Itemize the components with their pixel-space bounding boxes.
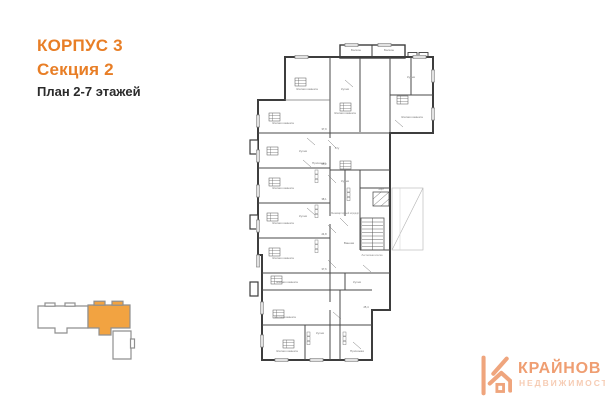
room-label: Жилая комната — [401, 115, 423, 119]
logo-name: КРАЙНОВ — [518, 360, 601, 378]
room-label: Прихожая — [350, 349, 364, 353]
floors-subtitle: План 2-7 этажей — [37, 82, 141, 102]
logo: КРАЙНОВ НЕДВИЖИМОСТЬ — [478, 352, 605, 400]
room-label: Жилая комната — [296, 87, 318, 91]
building-minimap — [35, 298, 137, 368]
room-label: Лифт — [378, 188, 385, 191]
room-label: Кухня — [299, 149, 307, 153]
room-label: Жилая комната — [276, 349, 298, 353]
exterior-terrace-outline — [392, 188, 423, 250]
room-label: Жилая комната — [276, 280, 298, 284]
room-label: Кухня — [341, 87, 349, 91]
room-label: С/у — [335, 146, 340, 150]
room-label: Балкон — [351, 48, 361, 52]
room-label: Лестничная клетка — [362, 254, 384, 257]
room-label: Кухня — [341, 179, 349, 183]
area-label: 37,9 — [321, 127, 327, 131]
room-label: Кухня — [316, 331, 324, 335]
room-label: Кухня — [353, 280, 361, 284]
k-house-icon — [480, 354, 512, 397]
building-title: КОРПУС 3 — [37, 34, 141, 58]
header-block: КОРПУС 3 Секция 2 План 2-7 этажей — [37, 34, 141, 102]
area-label: 38,1 — [321, 197, 327, 201]
logo-subtitle: НЕДВИЖИМОСТЬ — [519, 378, 605, 388]
minimap-lower-wing — [113, 331, 135, 359]
room-label: Жилая комната — [272, 256, 294, 260]
fixtures — [307, 170, 350, 345]
room-label: Балкон — [384, 48, 394, 52]
floor-plan: Балкон Балкон Жилая комната Кухня Кухня … — [245, 20, 455, 375]
area-label: 37,6 — [321, 267, 327, 271]
room-label: Ванная — [344, 241, 355, 245]
room-label: Кухня — [299, 214, 307, 218]
area-label: 24,8 — [321, 232, 327, 236]
area-label: 25,2 — [321, 162, 327, 166]
section-title: Секция 2 — [37, 58, 141, 82]
room-label: Жилая комната — [274, 315, 296, 319]
room-label: Кухня — [407, 75, 415, 79]
room-label: Жилая комната — [272, 121, 294, 125]
room-label: Жилая комната — [272, 221, 294, 225]
minimap-active-section — [88, 301, 130, 335]
room-label: Межквартирный коридор — [331, 212, 359, 215]
elevator-shaft — [373, 192, 389, 206]
room-label: Жилая комната — [272, 186, 294, 190]
page-root: КОРПУС 3 Секция 2 План 2-7 этажей — [0, 0, 605, 403]
room-label: Жилая комната — [334, 111, 356, 115]
area-label: 25,4 — [363, 305, 369, 309]
minimap-left-wing — [38, 303, 88, 333]
staircase — [361, 218, 384, 250]
